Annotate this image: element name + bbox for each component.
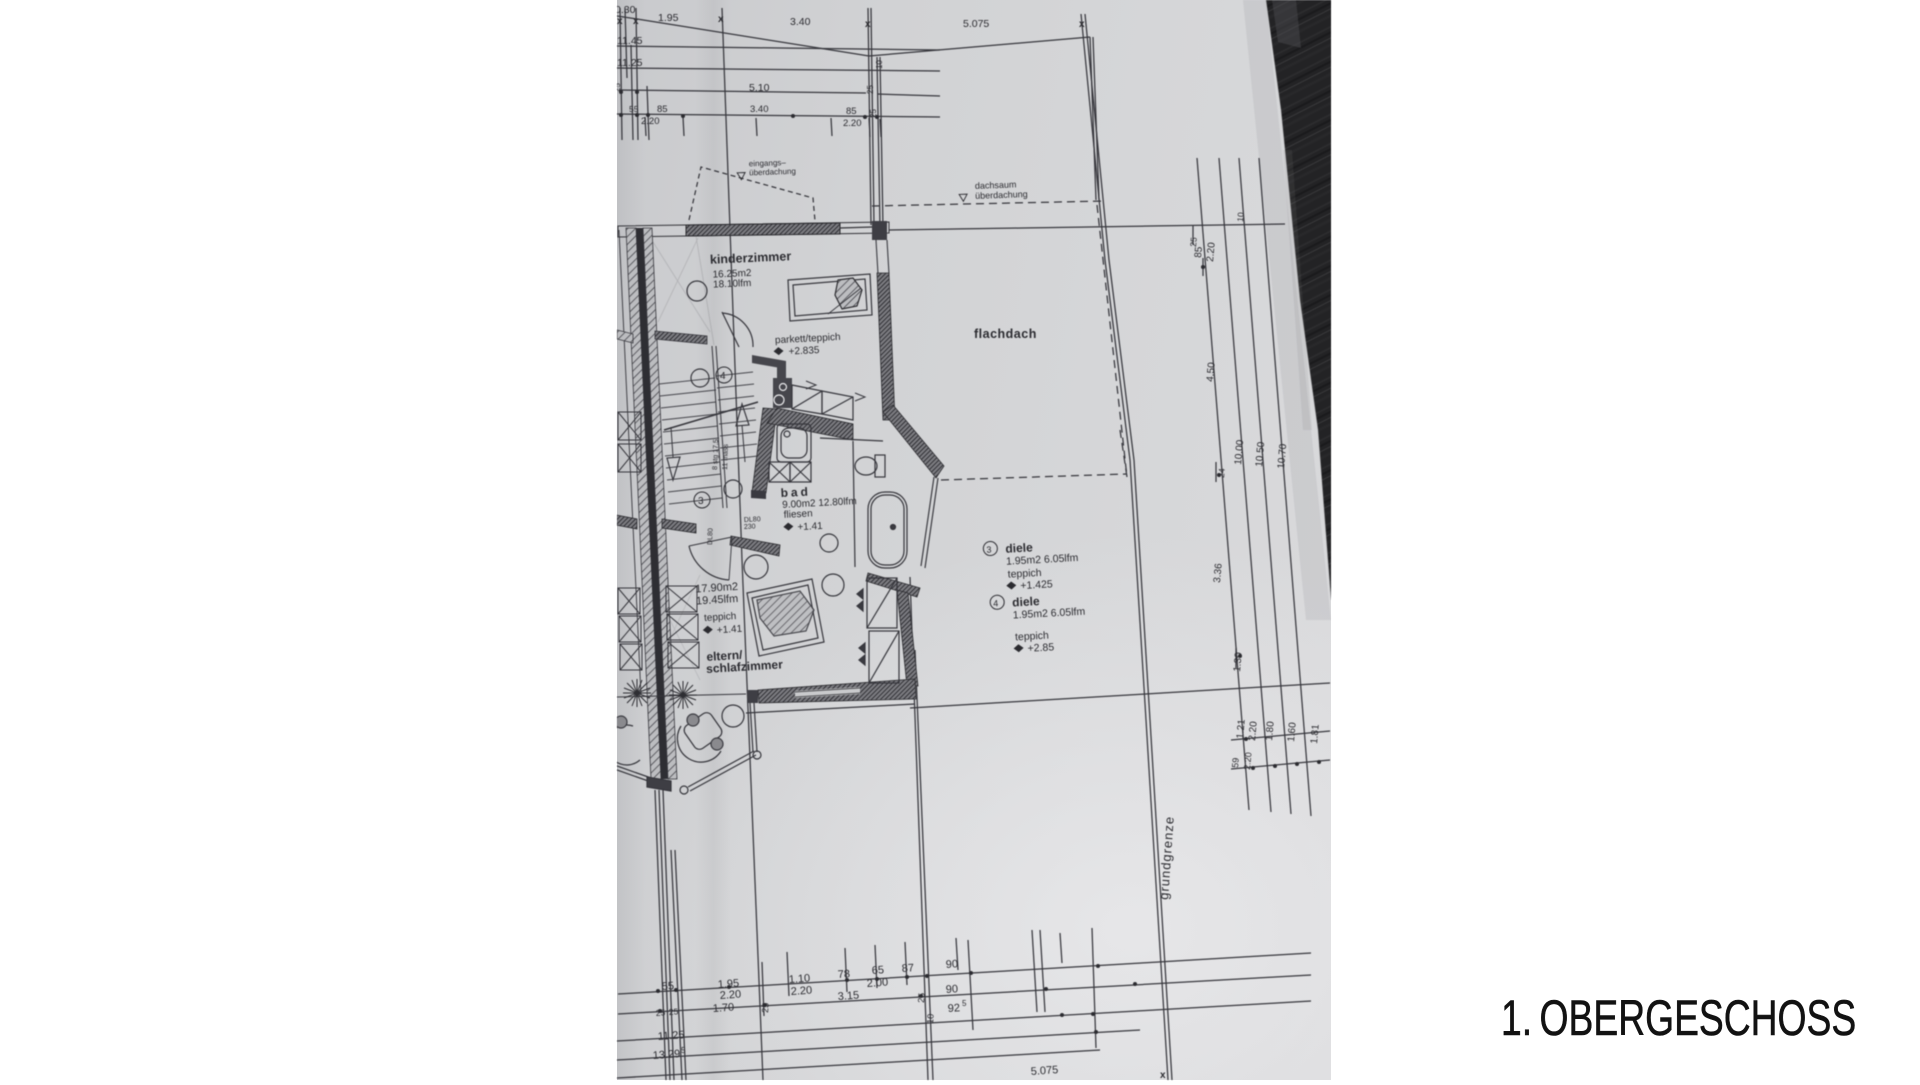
svg-text:1.81: 1.81 <box>1309 723 1322 744</box>
svg-text:kinderzimmer: kinderzimmer <box>710 249 792 267</box>
svg-text:10.50: 10.50 <box>1254 441 1267 467</box>
svg-text:90: 90 <box>945 958 958 971</box>
svg-text:1.70: 1.70 <box>712 1002 734 1015</box>
svg-text:1.95m2 6.05lfm: 1.95m2 6.05lfm <box>1006 552 1079 568</box>
svg-text:x: x <box>718 14 724 25</box>
svg-text:überdachung: überdachung <box>975 189 1028 201</box>
svg-text:1.80: 1.80 <box>1264 720 1277 741</box>
svg-text:0.30: 0.30 <box>617 4 636 16</box>
svg-text:24: 24 <box>1216 468 1227 479</box>
svg-text:3.15: 3.15 <box>837 990 859 1003</box>
svg-text:grundgrenze: grundgrenze <box>1156 815 1177 900</box>
svg-text:65: 65 <box>871 964 884 977</box>
svg-text:1.60: 1.60 <box>1286 721 1299 742</box>
svg-text:4.50: 4.50 <box>1205 361 1218 382</box>
svg-text:85: 85 <box>846 106 857 117</box>
svg-text:85: 85 <box>657 104 668 115</box>
svg-text:+2.85: +2.85 <box>1027 641 1054 654</box>
svg-text:5.075: 5.075 <box>1030 1064 1058 1078</box>
svg-text:3.36: 3.36 <box>1212 562 1225 583</box>
svg-text:55: 55 <box>661 980 674 993</box>
svg-text:55: 55 <box>629 104 639 114</box>
svg-text:fliesen: fliesen <box>783 508 812 520</box>
svg-text:92: 92 <box>947 1002 960 1015</box>
svg-text:1.95m2 6.05lfm: 1.95m2 6.05lfm <box>1013 606 1086 622</box>
svg-text:x: x <box>633 16 639 27</box>
svg-text:5: 5 <box>962 999 967 1008</box>
svg-text:90: 90 <box>945 983 958 996</box>
svg-text:diele: diele <box>1012 594 1040 609</box>
svg-text:230: 230 <box>744 523 756 531</box>
svg-text:25: 25 <box>668 1006 678 1017</box>
svg-text:+2.835: +2.835 <box>788 345 820 358</box>
svg-text:87: 87 <box>901 962 914 975</box>
svg-text:3: 3 <box>986 544 992 554</box>
svg-text:18.10lfm: 18.10lfm <box>713 278 752 291</box>
svg-text:5.10: 5.10 <box>749 82 770 94</box>
svg-text:13.29: 13.29 <box>652 1048 680 1062</box>
svg-text:10.70: 10.70 <box>1276 443 1289 469</box>
svg-text:1.21: 1.21 <box>1235 718 1248 739</box>
svg-text:parkett/teppich: parkett/teppich <box>775 332 841 346</box>
svg-text:2.20: 2.20 <box>719 989 741 1002</box>
svg-text:x: x <box>865 19 871 30</box>
svg-text:2.20: 2.20 <box>790 985 812 998</box>
svg-text:59: 59 <box>1230 757 1241 768</box>
svg-text:3: 3 <box>698 496 704 507</box>
svg-text:+1.41: +1.41 <box>717 624 743 637</box>
svg-text:diele: diele <box>1005 540 1033 555</box>
svg-text:x: x <box>1160 1070 1166 1080</box>
svg-text:2.20: 2.20 <box>641 116 660 127</box>
svg-text:4: 4 <box>993 598 999 608</box>
svg-text:19.45lfm: 19.45lfm <box>696 593 739 608</box>
svg-text:x: x <box>1079 19 1085 30</box>
svg-text:11.25: 11.25 <box>657 1029 684 1043</box>
svg-text:3.40: 3.40 <box>750 104 769 115</box>
svg-text:10.00: 10.00 <box>1233 439 1246 465</box>
svg-text:flachdach: flachdach <box>974 327 1037 341</box>
svg-text:25: 25 <box>866 85 875 94</box>
svg-text:11.45: 11.45 <box>617 35 643 47</box>
svg-text:2.20: 2.20 <box>843 118 862 129</box>
svg-text:3.40: 3.40 <box>790 16 811 28</box>
svg-text:10: 10 <box>1235 212 1246 223</box>
svg-text:10: 10 <box>925 1013 936 1024</box>
svg-text:bad: bad <box>780 484 811 500</box>
svg-text:2.20: 2.20 <box>1247 720 1260 741</box>
svg-text:+1.41: +1.41 <box>797 521 823 533</box>
svg-text:4: 4 <box>720 371 726 382</box>
svg-text:1.95: 1.95 <box>658 12 679 24</box>
svg-text:2.20: 2.20 <box>1205 241 1218 262</box>
svg-text:25: 25 <box>1188 237 1199 248</box>
svg-text:11 mass: 11 mass <box>722 443 730 470</box>
svg-text:teppich: teppich <box>704 611 737 624</box>
svg-text:10: 10 <box>875 60 884 69</box>
svg-text:1.30: 1.30 <box>1232 651 1245 672</box>
svg-text:+1.425: +1.425 <box>1020 578 1053 592</box>
svg-text:x: x <box>617 16 623 27</box>
svg-text:5.075: 5.075 <box>963 18 989 30</box>
svg-text:überdachung: überdachung <box>749 167 796 178</box>
svg-text:5: 5 <box>681 1046 686 1055</box>
svg-text:DL80: DL80 <box>707 528 715 545</box>
svg-text:11.25: 11.25 <box>617 57 643 69</box>
svg-text:8 stg 17.5: 8 stg 17.5 <box>712 439 720 470</box>
